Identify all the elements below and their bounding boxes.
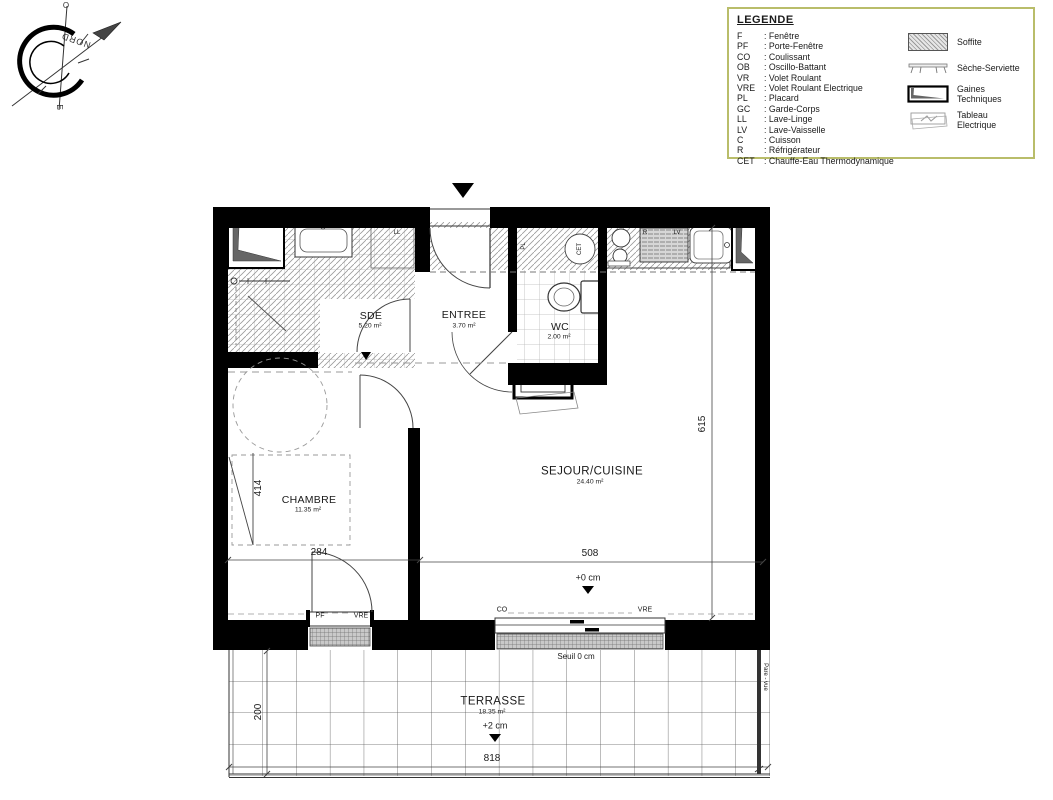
appliance-label-ll: LL <box>394 230 401 236</box>
soffite-symbol <box>907 33 949 51</box>
legend-row: C Cuisson <box>737 135 907 145</box>
floor-plan-page: { "compass": { "north_label": "NORD", "l… <box>0 0 1053 800</box>
legend-abbr: R <box>737 145 764 155</box>
compass-rose <box>12 6 121 110</box>
legend-abbr: CET <box>737 156 764 166</box>
room-area-wc: 2.00 m² <box>547 335 570 342</box>
room-label-sejour: SEJOUR/CUISINE <box>541 466 643 478</box>
legend-abbr: C <box>737 135 764 145</box>
room-label-chambre: CHAMBRE <box>282 495 337 506</box>
dim-sejour-height: 615 <box>698 416 708 433</box>
legend-row: VRE Volet Roulant Electrique <box>737 83 907 93</box>
legend-abbreviation-list: F Fenêtre PF Porte-Fenêtre CO Coulissant… <box>737 31 907 166</box>
seche-serviette-symbol <box>907 61 949 75</box>
legend-symbol-row: Tableau Electrique <box>907 111 1029 129</box>
legend-abbr-label: Chauffe-Eau Thermodynamique <box>764 156 894 166</box>
level-terrasse: +2 cm <box>483 722 508 731</box>
room-label-wc: WC <box>551 322 569 333</box>
legend-row: PF Porte-Fenêtre <box>737 41 907 51</box>
legend-abbr: LV <box>737 125 764 135</box>
room-area-sde: 5.20 m² <box>358 324 381 331</box>
legend-abbr: LL <box>737 114 764 124</box>
legend-abbr-label: Oscillo-Battant <box>764 62 826 72</box>
legend-symbol-row: Gaines Techniques <box>907 85 1029 103</box>
tableau-electrique-symbol <box>907 110 949 130</box>
room-area-terrasse: 18.35 m² <box>479 710 506 717</box>
legend-row: LL Lave-Linge <box>737 114 907 124</box>
legend-abbr: PF <box>737 41 764 51</box>
legend-abbr-label: Lave-Vaisselle <box>764 125 825 135</box>
dim-chambre-width: 284 <box>311 548 328 558</box>
legend-abbr-label: Coulissant <box>764 52 810 62</box>
level-sejour: +0 cm <box>576 574 601 583</box>
legend-abbr-label: Fenêtre <box>764 31 799 41</box>
compass-letter-east: E <box>55 104 63 109</box>
appliance-label-pl: PL <box>521 242 527 249</box>
legend-abbr-label: Porte-Fenêtre <box>764 41 823 51</box>
legend-abbr: VR <box>737 73 764 83</box>
legend-row: LV Lave-Vaisselle <box>737 125 907 135</box>
opening-label-vre-chambre: VRE <box>354 613 368 620</box>
legend-abbr-label: Placard <box>764 93 799 103</box>
dim-chambre-height: 414 <box>254 480 264 497</box>
legend-abbr-label: Lave-Linge <box>764 114 812 124</box>
legend-row: R Réfrigérateur <box>737 145 907 155</box>
level-seuil: Seuil 0 cm <box>557 653 594 661</box>
legend-symbols: Soffite Sèche-Serviette Gai <box>907 33 1029 137</box>
legend-row: GC Garde-Corps <box>737 104 907 114</box>
legend-abbr: CO <box>737 52 764 62</box>
legend-abbr: GC <box>737 104 764 114</box>
appliance-label-r: R <box>643 230 647 236</box>
legend-title: LEGENDE <box>737 14 1025 26</box>
appliance-label-cet: CET <box>577 243 583 255</box>
legend-abbr: PL <box>737 93 764 103</box>
legend-abbr-label: Volet Roulant <box>764 73 821 83</box>
gaines-techniques-symbol <box>907 85 949 103</box>
privacy-screen-label: Pare - vue <box>762 663 768 691</box>
opening-label-vre-sejour: VRE <box>638 607 652 614</box>
dim-terrasse-width: 818 <box>484 754 501 764</box>
dim-sejour-width: 508 <box>582 549 599 559</box>
room-label-entree: ENTREE <box>442 310 486 321</box>
legend-symbol-label: Sèche-Serviette <box>957 63 1020 73</box>
legend-abbr-label: Volet Roulant Electrique <box>764 83 863 93</box>
opening-label-co: CO <box>497 607 508 614</box>
legend-row: CO Coulissant <box>737 52 907 62</box>
legend-abbr: VRE <box>737 83 764 93</box>
legend-symbol-label: Gaines Techniques <box>957 84 1029 104</box>
legend-box: LEGENDE F Fenêtre PF Porte-Fenêtre CO Co… <box>727 7 1035 159</box>
legend-symbol-row: Soffite <box>907 33 1029 51</box>
legend-abbr-label: Cuisson <box>764 135 801 145</box>
room-label-sde: SDE <box>360 311 383 322</box>
legend-row: F Fenêtre <box>737 31 907 41</box>
compass-letter-west: O <box>63 2 69 10</box>
room-area-entree: 3.70 m² <box>452 324 475 331</box>
legend-abbr-label: Réfrigérateur <box>764 145 820 155</box>
room-area-chambre: 11.35 m² <box>295 508 321 515</box>
opening-label-pf: PF <box>316 613 325 620</box>
legend-symbol-label: Tableau Electrique <box>957 110 1029 130</box>
legend-abbr-label: Garde-Corps <box>764 104 820 114</box>
legend-symbol-label: Soffite <box>957 37 982 47</box>
legend-row: OB Oscillo-Battant <box>737 62 907 72</box>
room-label-terrasse: TERRASSE <box>460 696 525 708</box>
room-area-sejour: 24.40 m² <box>577 480 604 487</box>
legend-symbol-row: Sèche-Serviette <box>907 59 1029 77</box>
legend-row: CET Chauffe-Eau Thermodynamique <box>737 156 907 166</box>
legend-row: PL Placard <box>737 93 907 103</box>
legend-row: VR Volet Roulant <box>737 73 907 83</box>
legend-abbr: F <box>737 31 764 41</box>
appliance-label-lv: LV <box>674 230 681 236</box>
legend-abbr: OB <box>737 62 764 72</box>
dim-terrasse-depth: 200 <box>254 704 264 721</box>
